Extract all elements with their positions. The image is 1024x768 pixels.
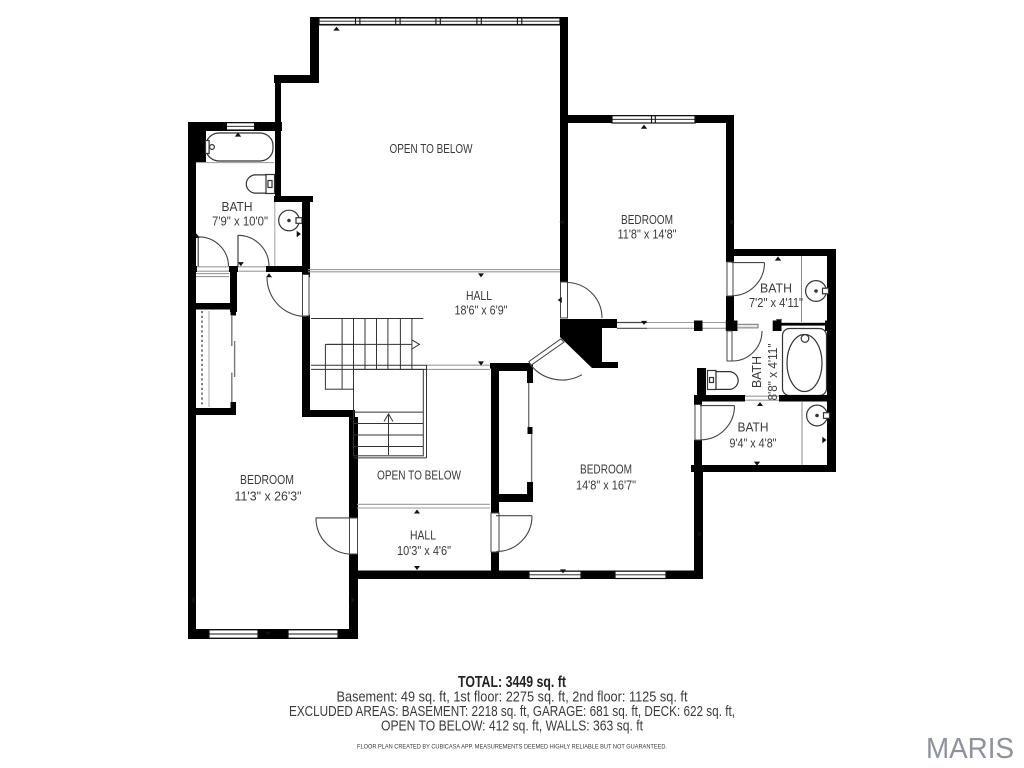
svg-text:11'8" x 14'8": 11'8" x 14'8" xyxy=(618,227,677,242)
svg-text:8'8" x 4'11": 8'8" x 4'11" xyxy=(765,344,780,401)
svg-text:7'9" x 10'0": 7'9" x 10'0" xyxy=(212,214,268,229)
svg-text:BATH: BATH xyxy=(738,420,769,435)
svg-text:BEDROOM: BEDROOM xyxy=(240,472,294,487)
svg-text:BEDROOM: BEDROOM xyxy=(580,462,632,477)
svg-text:MARIS: MARIS xyxy=(926,733,1014,765)
svg-text:10'3" x 4'6": 10'3" x 4'6" xyxy=(397,543,451,558)
svg-text:HALL: HALL xyxy=(410,528,436,543)
svg-text:11'3" x 26'3": 11'3" x 26'3" xyxy=(235,489,302,504)
svg-text:OPEN TO BELOW: OPEN TO BELOW xyxy=(377,468,462,483)
svg-text:7'2" x 4'11": 7'2" x 4'11" xyxy=(749,295,803,310)
svg-text:18'6" x 6'9": 18'6" x 6'9" xyxy=(455,303,508,318)
svg-text:BEDROOM: BEDROOM xyxy=(621,212,673,227)
svg-text:9'4" x 4'8": 9'4" x 4'8" xyxy=(730,436,777,451)
svg-text:BATH: BATH xyxy=(749,356,764,388)
svg-text:OPEN TO BELOW: OPEN TO BELOW xyxy=(390,141,474,156)
svg-text:14'8" x 16'7": 14'8" x 16'7" xyxy=(576,478,636,493)
svg-text:FLOOR PLAN CREATED BY CUBICASA: FLOOR PLAN CREATED BY CUBICASA APP. MEAS… xyxy=(357,744,667,751)
svg-text:OPEN TO BELOW: 412 sq. ft, WAL: OPEN TO BELOW: 412 sq. ft, WALLS: 363 sq… xyxy=(381,718,644,735)
svg-text:HALL: HALL xyxy=(466,288,492,303)
svg-text:BATH: BATH xyxy=(760,281,792,296)
svg-text:BATH: BATH xyxy=(222,199,253,214)
